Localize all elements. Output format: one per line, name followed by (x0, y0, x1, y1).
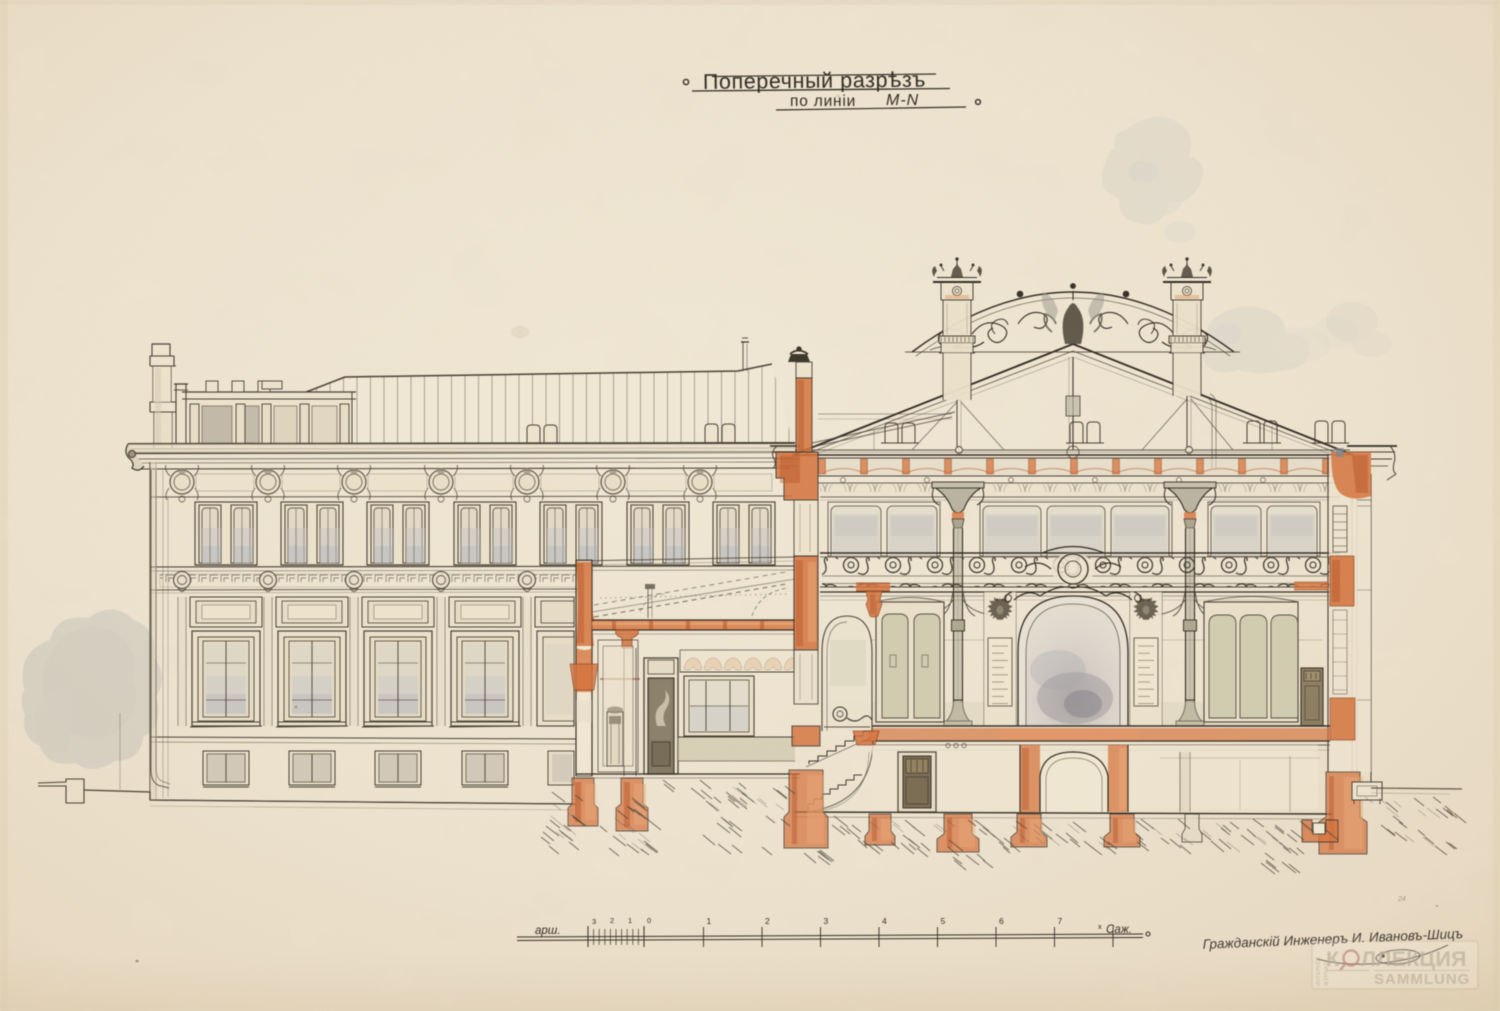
svg-text:5: 5 (941, 916, 946, 926)
svg-text:2: 2 (765, 916, 770, 926)
svg-text:3: 3 (592, 917, 596, 926)
svg-text:1: 1 (707, 916, 712, 926)
svg-text:0: 0 (647, 916, 651, 925)
svg-text:x: x (1098, 922, 1102, 931)
svg-text:6: 6 (999, 916, 1004, 926)
svg-text:ЖУРНАЛ: ЖУРНАЛ (1324, 962, 1330, 986)
svg-text:2: 2 (610, 916, 614, 925)
svg-text:арш.: арш. (535, 925, 561, 937)
svg-text:Саж.: Саж. (1106, 924, 1132, 936)
svg-text:ЛЛЕКЦИЯ: ЛЛЕКЦИЯ (1361, 947, 1467, 971)
svg-text:4: 4 (882, 916, 887, 926)
svg-text:M-N: M-N (886, 92, 919, 109)
svg-text:3: 3 (824, 916, 829, 926)
svg-text:SAMMLUNG: SAMMLUNG (1374, 971, 1470, 988)
svg-text:по линіи: по линіи (790, 93, 856, 110)
svg-text:1: 1 (628, 916, 632, 925)
svg-text:ИНТЕРНЕТ: ИНТЕРНЕТ (1316, 956, 1322, 986)
svg-text:24: 24 (1397, 896, 1406, 903)
svg-text:7: 7 (1058, 916, 1063, 926)
